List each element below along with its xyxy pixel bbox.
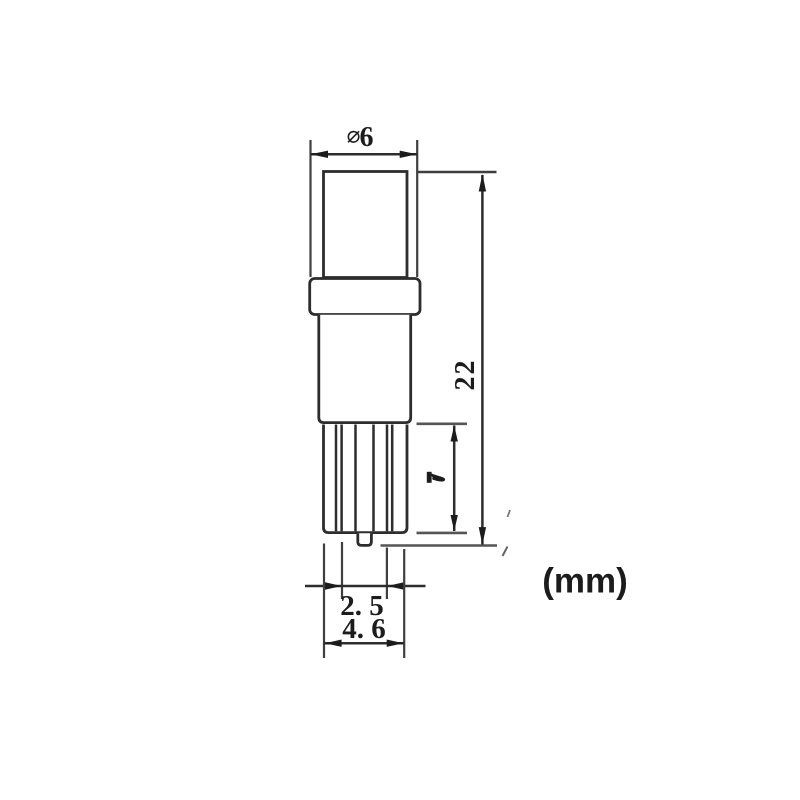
svg-text:4. 6: 4. 6 xyxy=(342,613,386,645)
svg-text:22: 22 xyxy=(450,359,481,391)
svg-text:6: 6 xyxy=(360,122,374,153)
svg-text:(mm): (mm) xyxy=(542,562,628,601)
